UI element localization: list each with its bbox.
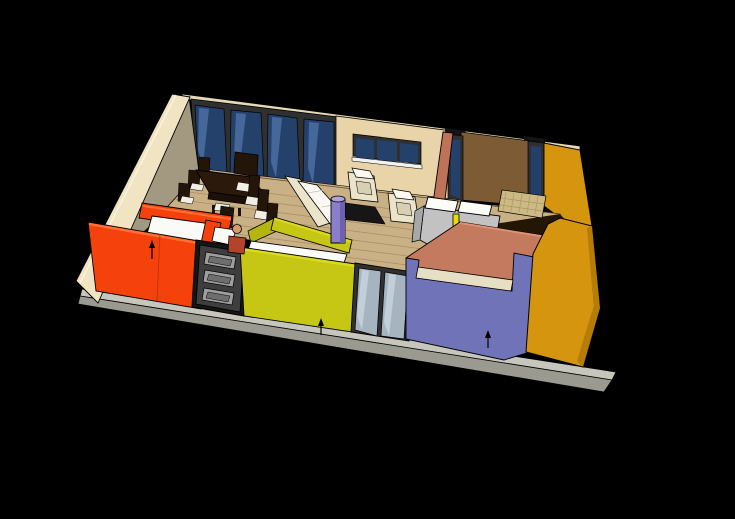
person-head	[233, 225, 242, 234]
window-pane	[451, 139, 460, 198]
tv-panel	[234, 152, 258, 177]
table-leg	[238, 208, 241, 216]
render-canvas	[0, 0, 735, 519]
window-pane	[400, 143, 418, 163]
violet-column	[331, 196, 345, 243]
viewport-3d[interactable]	[0, 0, 735, 519]
window-pane	[356, 138, 374, 160]
person-torso	[228, 236, 246, 254]
front-window	[351, 263, 413, 341]
window-pane	[377, 140, 397, 162]
window-pane	[303, 119, 334, 190]
